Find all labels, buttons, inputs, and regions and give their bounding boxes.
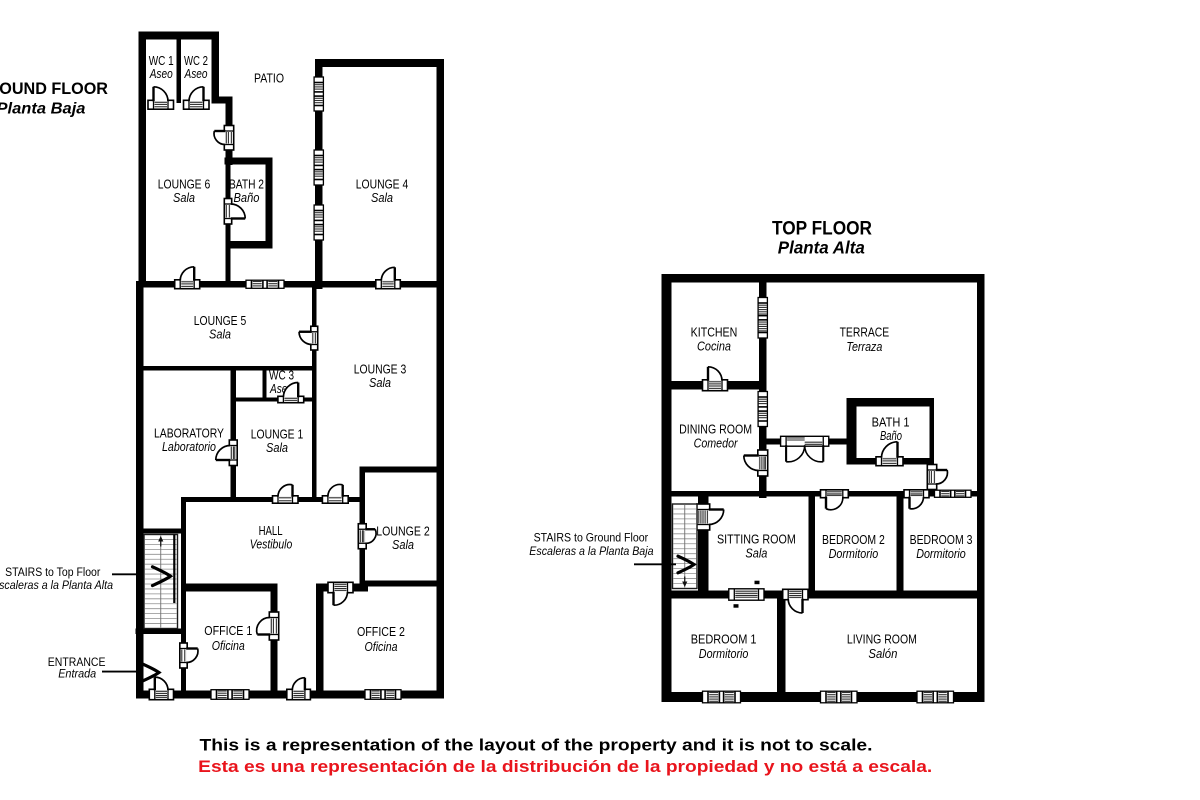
svg-text:Cocina: Cocina [697, 340, 731, 354]
svg-text:Escaleras a la Planta Alta: Escaleras a la Planta Alta [0, 578, 113, 592]
svg-text:HALL: HALL [259, 523, 283, 538]
svg-text:Baño: Baño [880, 429, 902, 443]
svg-text:GROUND FLOOR: GROUND FLOOR [0, 80, 108, 98]
svg-text:Oficina: Oficina [365, 640, 398, 654]
svg-text:Salón: Salón [868, 647, 897, 661]
svg-text:STAIRS to Ground Floor: STAIRS to Ground Floor [534, 531, 649, 545]
svg-text:BEDROOM 2: BEDROOM 2 [822, 532, 885, 547]
svg-text:LOUNGE 3: LOUNGE 3 [354, 362, 407, 377]
svg-text:Sala: Sala [371, 191, 393, 205]
svg-text:WC 1: WC 1 [149, 53, 174, 68]
svg-text:LIVING ROOM: LIVING ROOM [847, 632, 917, 647]
svg-text:BEDROOM 3: BEDROOM 3 [910, 532, 973, 547]
svg-text:Sala: Sala [369, 376, 391, 390]
svg-text:Dormitorio: Dormitorio [699, 647, 749, 661]
svg-text:Sala: Sala [209, 328, 231, 342]
svg-text:Oficina: Oficina [212, 639, 245, 653]
svg-text:BATH 2: BATH 2 [229, 177, 264, 192]
svg-text:Escaleras a la Planta Baja: Escaleras a la Planta Baja [529, 544, 653, 558]
svg-text:LOUNGE 6: LOUNGE 6 [158, 177, 211, 192]
svg-text:LOUNGE 1: LOUNGE 1 [251, 427, 304, 442]
svg-text:Entrada: Entrada [58, 667, 96, 681]
svg-text:LABORATORY: LABORATORY [154, 426, 224, 441]
svg-text:DINING ROOM: DINING ROOM [679, 422, 752, 437]
svg-text:Dormitorio: Dormitorio [916, 547, 966, 561]
svg-text:LOUNGE 2: LOUNGE 2 [376, 524, 430, 539]
svg-text:Sala: Sala [392, 538, 414, 552]
svg-text:Planta Alta: Planta Alta [778, 238, 865, 258]
svg-text:Laboratorio: Laboratorio [162, 440, 216, 454]
svg-text:LOUNGE 5: LOUNGE 5 [194, 313, 247, 328]
svg-text:This is a representation of th: This is a representation of the layout o… [200, 736, 873, 755]
svg-text:OFFICE 1: OFFICE 1 [204, 623, 252, 638]
svg-text:LOUNGE 4: LOUNGE 4 [356, 177, 409, 192]
svg-text:Aseo: Aseo [149, 67, 173, 81]
svg-text:OFFICE 2: OFFICE 2 [357, 624, 405, 639]
svg-text:Terraza: Terraza [846, 340, 882, 354]
svg-text:WC 2: WC 2 [184, 53, 208, 68]
svg-text:Aseo: Aseo [184, 67, 208, 81]
svg-text:Sala: Sala [266, 441, 288, 455]
svg-text:SITTING ROOM: SITTING ROOM [717, 531, 796, 546]
svg-text:BEDROOM 1: BEDROOM 1 [691, 632, 757, 647]
svg-text:Esta es una representación de: Esta es una representación de la distrib… [198, 757, 932, 776]
svg-text:Baño: Baño [234, 191, 260, 205]
svg-text:Planta Baja: Planta Baja [0, 101, 86, 118]
svg-text:KITCHEN: KITCHEN [691, 325, 738, 340]
svg-text:PATIO: PATIO [254, 71, 284, 86]
svg-text:TOP FLOOR: TOP FLOOR [772, 219, 872, 240]
svg-text:Comedor: Comedor [694, 437, 739, 451]
svg-text:STAIRS to Top Floor: STAIRS to Top Floor [5, 565, 100, 579]
svg-text:Vestibulo: Vestibulo [250, 538, 293, 552]
svg-text:Sala: Sala [173, 191, 195, 205]
svg-text:Sala: Sala [745, 546, 767, 560]
svg-text:BATH 1: BATH 1 [872, 414, 910, 429]
svg-text:Dormitorio: Dormitorio [829, 547, 879, 561]
svg-text:WC 3: WC 3 [269, 367, 294, 382]
svg-text:TERRACE: TERRACE [840, 325, 890, 340]
